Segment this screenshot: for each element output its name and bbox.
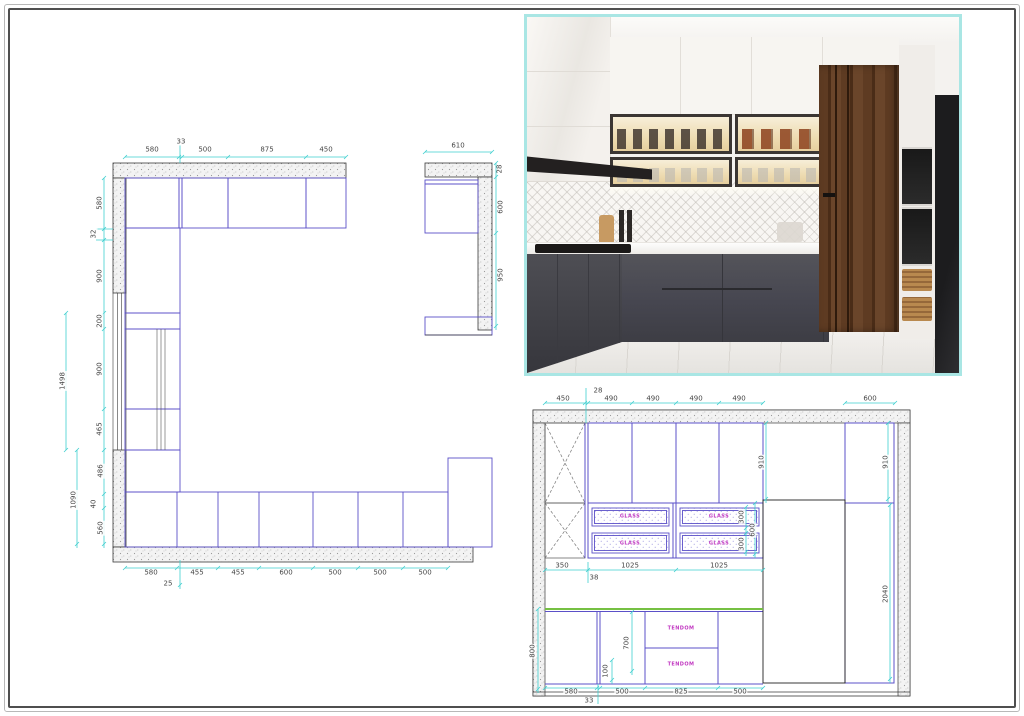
gas-hob <box>535 244 631 253</box>
kitchen-render-photo <box>524 14 962 376</box>
storage-basket <box>902 297 932 321</box>
floor-plan <box>64 145 492 589</box>
base-cabinet-front <box>622 254 829 342</box>
elevation-view <box>533 388 910 704</box>
built-in-oven <box>902 147 932 206</box>
left-wall-cabinets <box>527 17 611 182</box>
refrigerator <box>935 95 959 373</box>
door-handle <box>823 193 835 197</box>
side-plan <box>423 150 498 335</box>
counter-jar <box>777 222 803 242</box>
chopping-board <box>599 215 614 243</box>
storage-basket <box>902 269 932 291</box>
kitchen-design-sheet: { "colors": { "dimension_cyan": "#3fcfcf… <box>0 0 1024 716</box>
wood-panel-door <box>819 65 899 332</box>
glass-display-cabinet <box>610 114 732 154</box>
bottles <box>619 210 635 243</box>
dishes <box>742 168 817 182</box>
wall-cabinets <box>610 37 824 115</box>
jars <box>742 129 817 149</box>
drawer-handle <box>662 288 772 290</box>
glass-display-cabinet <box>735 157 824 187</box>
under-cabinet-light <box>610 187 824 196</box>
jars <box>617 129 725 149</box>
glass-display-cabinet <box>735 114 824 154</box>
built-in-oven <box>902 207 932 266</box>
